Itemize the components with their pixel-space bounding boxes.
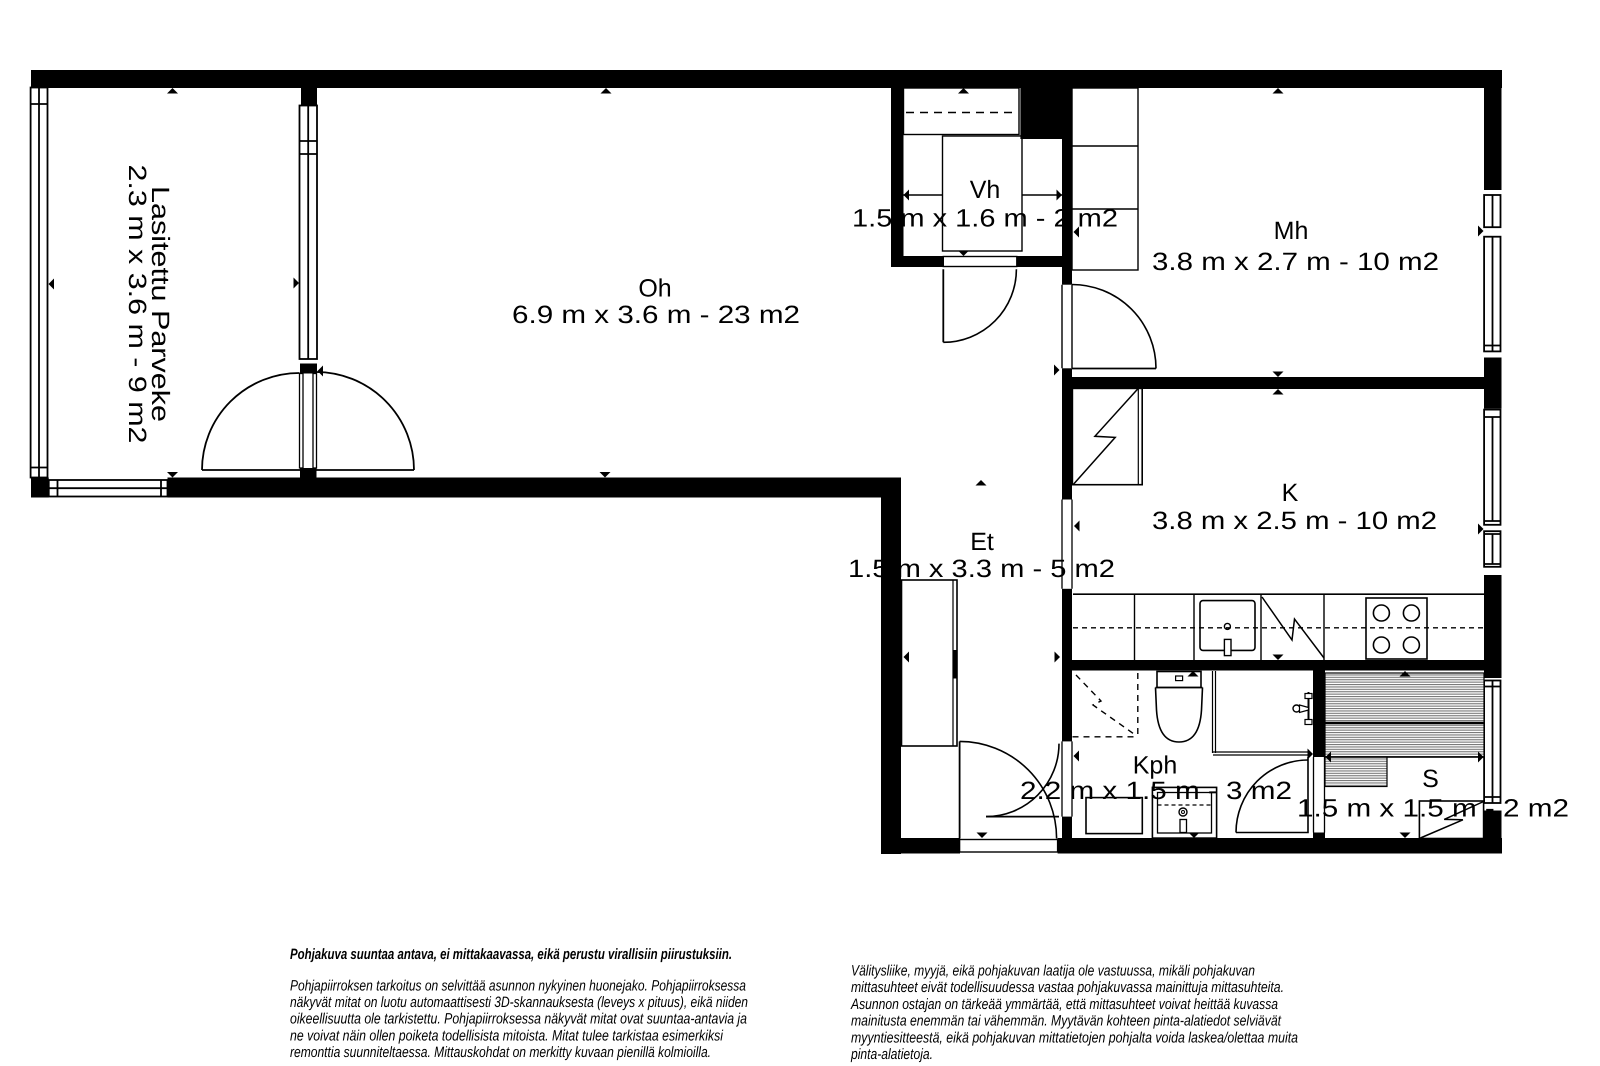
svg-text:2.3 m x 3.6 m - 9 m2: 2.3 m x 3.6 m - 9 m2 xyxy=(123,165,151,444)
svg-text:K: K xyxy=(1282,479,1299,507)
svg-text:mainitusta enemmän tai vähemmä: mainitusta enemmän tai vähemmän. Myytävä… xyxy=(851,1013,1282,1030)
svg-text:mittasuhteet eivät todellisuud: mittasuhteet eivät todellisuudessa vasta… xyxy=(851,979,1284,996)
svg-text:myyntiesitteestä, eikä pohjaku: myyntiesitteestä, eikä pohjakuvan mittat… xyxy=(851,1029,1298,1046)
svg-text:Mh: Mh xyxy=(1274,217,1309,245)
svg-text:oikeellisuutta ole tarkistettu: oikeellisuutta ole tarkistettu. Pohjapii… xyxy=(290,1011,747,1028)
svg-text:3.8 m x 2.5 m - 10 m2: 3.8 m x 2.5 m - 10 m2 xyxy=(1152,507,1437,535)
svg-text:näkyvät mitat on luotu automaa: näkyvät mitat on luotu automaattisesti 3… xyxy=(290,994,748,1011)
svg-text:3.8 m x 2.7 m - 10 m2: 3.8 m x 2.7 m - 10 m2 xyxy=(1152,248,1439,276)
svg-text:Välitysliike, myyjä, eikä pohj: Välitysliike, myyjä, eikä pohjakuvan laa… xyxy=(851,962,1255,979)
svg-text:Vh: Vh xyxy=(970,176,1001,204)
svg-text:1.5 m x 3.3 m - 5 m2: 1.5 m x 3.3 m - 5 m2 xyxy=(848,555,1115,583)
svg-text:1.5 m x 1.5 m - 2 m2: 1.5 m x 1.5 m - 2 m2 xyxy=(1297,795,1569,823)
svg-text:S: S xyxy=(1422,765,1439,793)
svg-text:Asunnon ostajan on tärkeää ymm: Asunnon ostajan on tärkeää ymmärtää, ett… xyxy=(850,996,1278,1013)
svg-text:Kph: Kph xyxy=(1133,751,1177,779)
svg-text:1.5 m x 1.6 m - 2 m2: 1.5 m x 1.6 m - 2 m2 xyxy=(852,204,1118,232)
svg-text:ne voivat näin ollen poiketa t: ne voivat näin ollen poiketa todellisist… xyxy=(290,1027,724,1044)
svg-text:Oh: Oh xyxy=(638,275,671,303)
svg-text:Pohjakuva suuntaa antava, ei m: Pohjakuva suuntaa antava, ei mittakaavas… xyxy=(290,946,732,963)
svg-text:Pohjapiirroksen tarkoitus on s: Pohjapiirroksen tarkoitus on selvittää a… xyxy=(290,978,746,995)
svg-text:6.9 m x 3.6 m - 23 m2: 6.9 m x 3.6 m - 23 m2 xyxy=(512,301,800,329)
svg-text:2.2 m x 1.5 m - 3 m2: 2.2 m x 1.5 m - 3 m2 xyxy=(1020,777,1292,805)
svg-text:Et: Et xyxy=(970,528,994,556)
svg-text:remonttia suunniteltaessa. Mit: remonttia suunniteltaessa. Mittauskohdat… xyxy=(290,1044,711,1061)
svg-text:pinta-alatietoja.: pinta-alatietoja. xyxy=(850,1046,933,1063)
